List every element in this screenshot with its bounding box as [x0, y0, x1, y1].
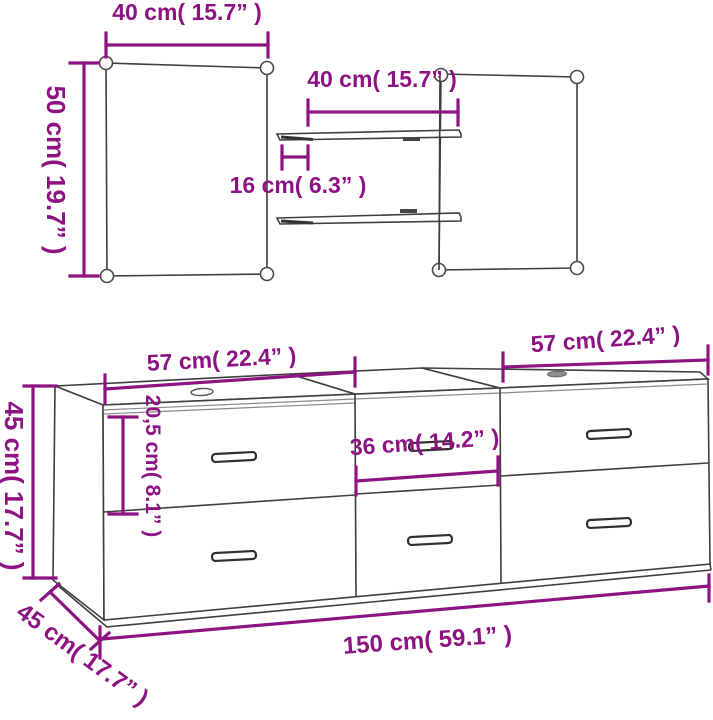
dim-label-mirror-width: 40 cm( 15.7” ) [112, 0, 262, 25]
right-tap-hole [547, 371, 566, 377]
product-dimension-diagram: 40 cm( 15.7” ) 50 cm( 19.7” ) 40 cm( 15.… [0, 0, 713, 720]
dim-label-cabinet-left-width: 57 cm( 22.4” ) [146, 342, 297, 376]
dim-line [503, 360, 708, 367]
left-mirror [100, 57, 274, 283]
handle-left-lower-drawer [212, 551, 256, 561]
plinth-right-edge [710, 564, 711, 570]
dim-cabinet-height: 45 cm( 17.7” ) [0, 386, 56, 578]
dim-label-cabinet-right-width: 57 cm( 22.4” ) [530, 321, 681, 357]
dim-mirror-width: 40 cm( 15.7” ) [106, 0, 268, 57]
dim-mirror-height: 50 cm( 19.7” ) [41, 63, 98, 276]
cabinet-front-face [103, 379, 710, 620]
handle-left-upper-drawer [212, 452, 256, 462]
left-mirror-corner-fixing [261, 268, 274, 281]
cabinet-side-panel [53, 386, 104, 620]
diagram-svg: 40 cm( 15.7” ) 50 cm( 19.7” ) 40 cm( 15.… [0, 0, 713, 720]
right-mirror-frame [439, 74, 577, 270]
left-mirror-frame [106, 63, 267, 276]
right-mirror-corner-fixing [571, 71, 584, 84]
dim-label-mirror-height: 50 cm( 19.7” ) [41, 85, 71, 254]
right-mirror-left-edge [439, 74, 440, 270]
dim-label-shelf-depth: 16 cm( 6.3” ) [230, 172, 367, 198]
right-mirror-corner-fixing [571, 262, 584, 275]
dim-shelf-width: 40 cm( 15.7” ) [307, 66, 458, 125]
module-divider-right [500, 388, 501, 583]
dim-label-cabinet-total-width: 150 cm( 59.1” ) [342, 621, 513, 660]
handle-right-upper-drawer [587, 429, 631, 439]
dim-label-drawer-height: 20,5 cm( 8.1” ) [141, 395, 164, 537]
dim-label-cabinet-height: 45 cm( 17.7” ) [0, 401, 29, 570]
handle-right-lower-drawer [587, 518, 631, 528]
handle-middle-lower-drawer [408, 535, 452, 545]
lower-shelf-edge-shadow [281, 221, 313, 223]
dim-label-shelf-width: 40 cm( 15.7” ) [307, 66, 457, 92]
left-mirror-corner-fixing [261, 62, 274, 75]
right-mirror [433, 69, 584, 277]
left-mirror-corner-fixing [101, 270, 114, 283]
